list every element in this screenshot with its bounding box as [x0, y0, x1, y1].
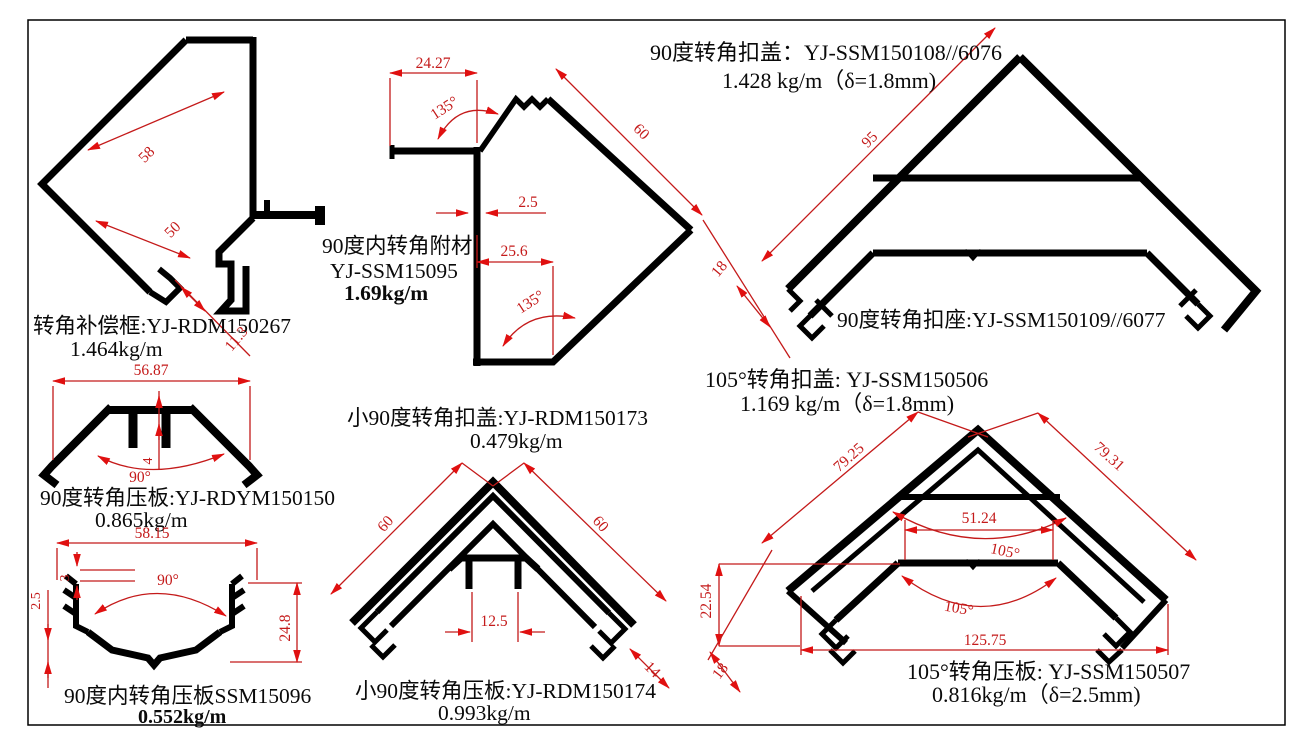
dim-top: 24.27: [416, 55, 451, 72]
drawing-cap90: 95 18 90度转角扣盖：YJ-SSM150108//6076 1.428 k…: [650, 28, 1256, 358]
dim-slot: 12.5: [480, 613, 507, 630]
profile-path: [1020, 57, 1256, 330]
ext-line: [703, 220, 790, 358]
part-code: YJ-SSM15095: [330, 259, 458, 283]
dim-rib: 4: [141, 458, 156, 465]
cad-drawing-canvas: 58 50 11.3 转角补偿框:YJ-RDM150267 1.464kg/m: [0, 0, 1310, 754]
ext-line: [80, 570, 135, 581]
part-weight: 1.69kg/m: [344, 281, 428, 305]
dim-angle: 90°: [157, 572, 179, 589]
profile-path: [219, 218, 253, 311]
angle-arc: [98, 454, 224, 470]
part-weight: 1.428 kg/m（δ=1.8mm): [722, 68, 936, 93]
inner-press90-profile: [64, 576, 244, 665]
dim-foot: 18: [708, 258, 731, 281]
dim-step: 3: [58, 575, 73, 582]
drawing-small90: 60 60 12.5 14 小90度转角扣盖:YJ-RDM150173 0.47…: [331, 406, 669, 725]
angle-arc: [503, 316, 575, 346]
profile-path: [44, 407, 111, 485]
profile-path: [1122, 600, 1166, 648]
dim-web: 2.5: [518, 194, 538, 211]
dim-side-right: 60: [589, 513, 612, 536]
press-label: 小90度转角压板:YJ-RDM150174: [355, 679, 656, 703]
profile-path: [42, 40, 186, 292]
sheet-border: [28, 20, 1285, 725]
drawing-attach90: 24.27 135° 60 2.5 25.6 135° 90度内转角附材 YJ-…: [322, 55, 702, 366]
profile-path: [1097, 618, 1130, 662]
profile-path: [190, 407, 257, 485]
profile-path: [133, 412, 166, 448]
attach90-profile: [392, 99, 691, 366]
press90-dims: [53, 381, 250, 470]
dim-height: 22.54: [698, 583, 715, 618]
dim-inner-width: 51.24: [962, 510, 997, 527]
dim-line: [181, 287, 205, 311]
inner-press90-dims: [48, 543, 302, 688]
dim-angle-top: 135°: [428, 93, 462, 123]
part-weight: 1.464kg/m: [70, 337, 163, 361]
dim-lip: 2.5: [29, 592, 44, 610]
profile-path: [391, 524, 595, 627]
press-label: 105°转角压板: YJ-SSM150507: [907, 659, 1190, 684]
dim-total-width: 125.75: [964, 632, 1007, 649]
angle-arc: [95, 593, 226, 616]
dim-angle-bottom: 105°: [943, 598, 975, 620]
cap-label: 小90度转角扣盖:YJ-RDM150173: [347, 406, 648, 430]
dim-foot: 18: [709, 660, 732, 683]
profile-path: [480, 99, 548, 151]
cad-sheet: 58 50 11.3 转角补偿框:YJ-RDM150267 1.464kg/m: [0, 0, 1310, 754]
cap90-profile: [788, 57, 1256, 338]
part-label: 90度内转角压板SSM15096: [64, 684, 312, 708]
profile-path: [469, 560, 518, 589]
dim-line: [737, 286, 770, 327]
dim-side: 95: [858, 128, 881, 151]
profile-path: [88, 632, 220, 665]
dim-width: 56.87: [134, 362, 169, 379]
corner-comp-profile: [42, 37, 320, 311]
cap-weight: 1.169 kg/m（δ=1.8mm): [740, 391, 954, 416]
dim-angle-bottom: 135°: [514, 287, 548, 317]
part-label: 90度转角压板:YJ-RDYM150150: [40, 486, 335, 510]
angle-arc: [902, 576, 1056, 607]
dim-line: [556, 69, 702, 215]
drawing-corner-comp: 58 50 11.3 转角补偿框:YJ-RDM150267 1.464kg/m: [33, 37, 320, 361]
part-title: 90度转角扣盖：YJ-SSM150108//6076: [650, 40, 1002, 65]
dim-foot: 14: [641, 658, 664, 681]
ext-line: [708, 550, 772, 660]
profile-path: [150, 269, 180, 302]
drawing-inner-press90: 58.15 3 2.5 90° 24.8 90度内转角压板SSM15096 0.…: [29, 525, 312, 728]
profile-path: [449, 558, 538, 569]
profile-path: [352, 482, 634, 625]
cap-title: 105°转角扣盖: YJ-SSM150506: [705, 367, 988, 392]
part-weight: 0.552kg/m: [138, 706, 227, 728]
profile-path: [220, 576, 244, 632]
part-label: 90度内转角附材: [322, 234, 473, 258]
dim-line: [1038, 413, 1196, 560]
profile-path: [64, 576, 88, 632]
cap-weight: 0.479kg/m: [470, 429, 563, 453]
dim-inner: 50: [161, 218, 184, 241]
profile-path: [361, 612, 395, 657]
press-weight: 0.816kg/m（δ=2.5mm): [932, 682, 1141, 707]
ext-line: [53, 386, 250, 460]
dim-height: 24.8: [277, 614, 294, 641]
dim-angle: 90°: [129, 469, 151, 486]
drawing-deg105: 79.25 79.31 51.24 105° 105° 22.54 125.75…: [698, 367, 1196, 707]
drawing-press90: 56.87 4 90° 90度转角压板:YJ-RDYM150150 0.865k…: [40, 362, 335, 532]
seat-label: 90度转角扣座:YJ-SSM150109//6077: [837, 308, 1166, 332]
press-weight: 0.993kg/m: [438, 701, 531, 725]
profile-path: [1180, 290, 1210, 328]
dim-bottom: 25.6: [500, 243, 527, 260]
dim-side-right: 79.31: [1090, 439, 1127, 475]
profile-path: [591, 613, 625, 658]
dim-width: 58: [135, 143, 158, 166]
profile-path: [548, 99, 691, 230]
small90-profile: [352, 482, 634, 658]
dim-side: 60: [630, 120, 653, 143]
part-label: 转角补偿框:YJ-RDM150267: [33, 314, 291, 338]
profile-path: [822, 620, 855, 663]
profile-path: [836, 563, 898, 620]
dim-width: 58.15: [135, 525, 170, 542]
